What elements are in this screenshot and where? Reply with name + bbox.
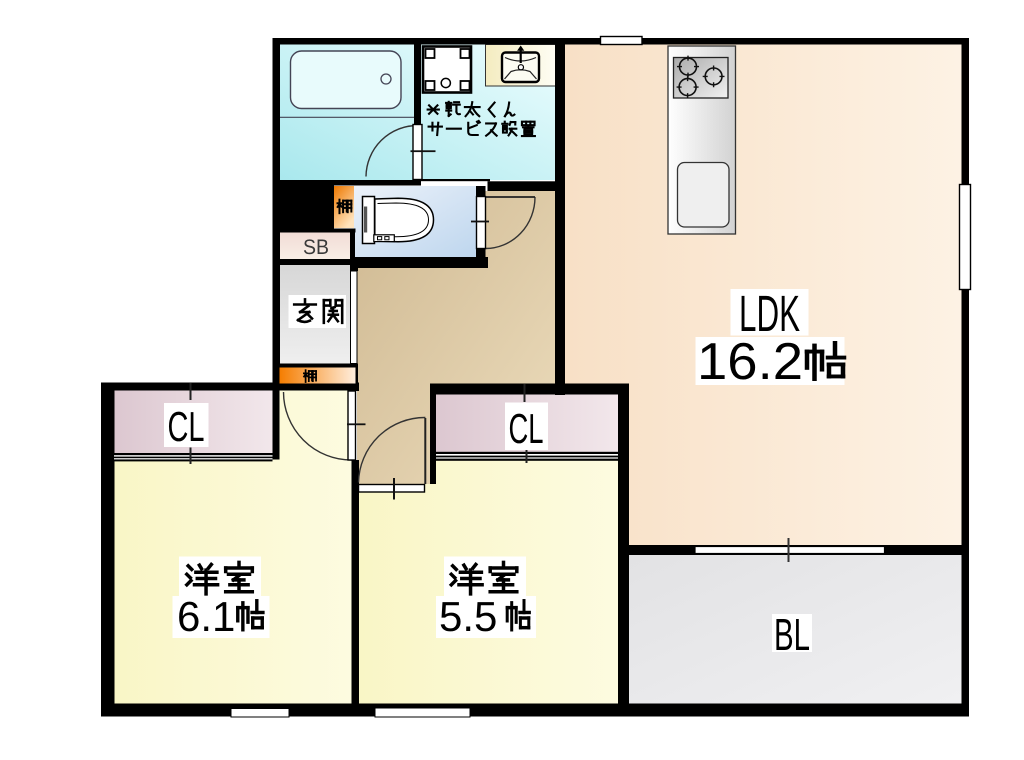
- svg-text:BL: BL: [774, 609, 810, 660]
- svg-text:CL: CL: [509, 405, 544, 452]
- svg-text:SB: SB: [303, 236, 329, 259]
- svg-text:16.2: 16.2: [697, 333, 803, 391]
- svg-text:CL: CL: [168, 403, 205, 450]
- svg-text:6.1: 6.1: [177, 593, 235, 640]
- svg-text:5.5: 5.5: [439, 593, 497, 640]
